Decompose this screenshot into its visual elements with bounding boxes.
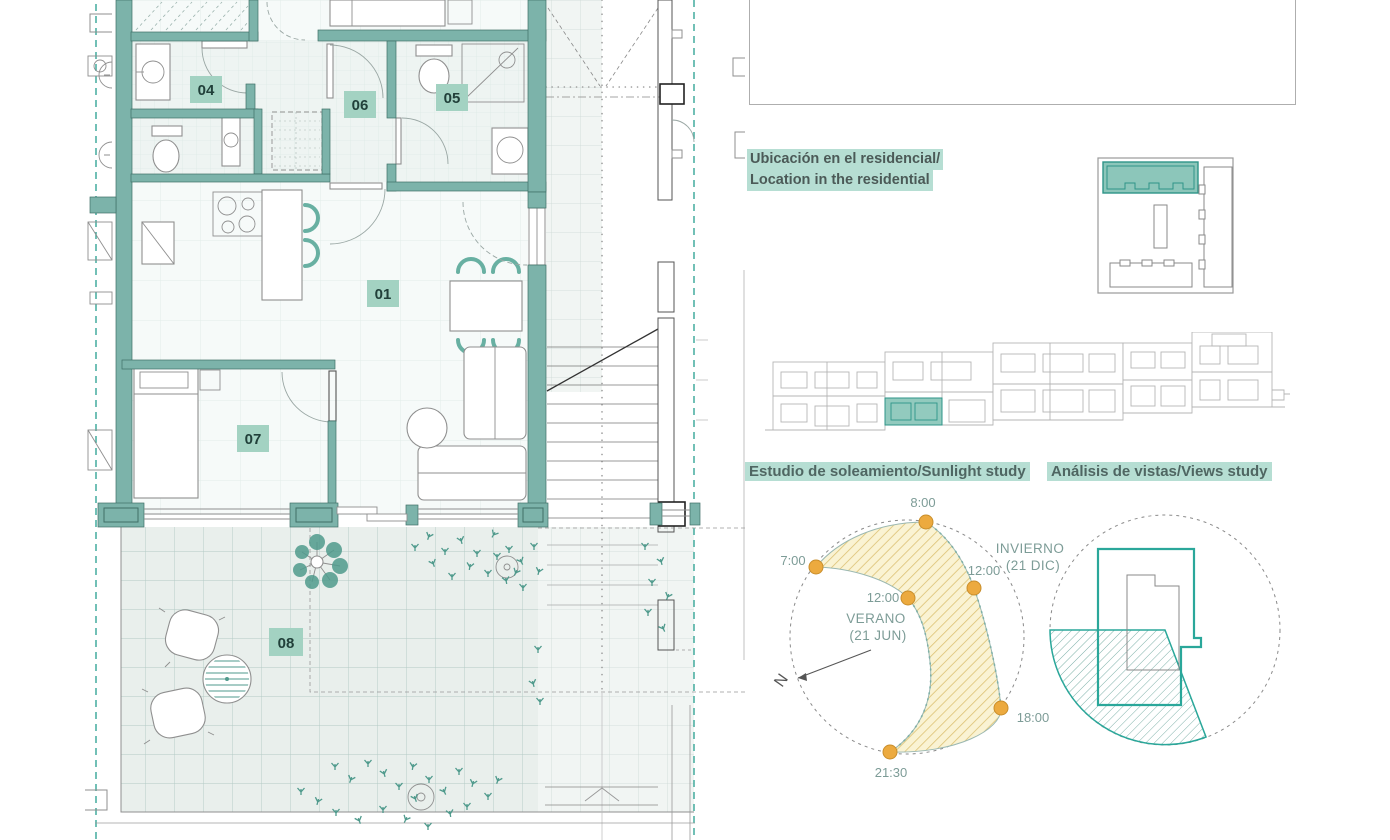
room-label-05-text: 05 [444,90,461,107]
location-heading: Ubicación en el residencial/ Location in… [747,149,943,191]
room-label-05: 05 [436,84,468,111]
time-label-800: 8:00 [910,495,935,510]
room-label-07: 07 [237,425,269,452]
time-label-1200-winter: 12:00 [968,563,1001,578]
room-label-06-text: 06 [352,97,369,114]
room-label-08: 08 [269,628,303,656]
views-study-title-text: Análisis de vistas/Views study [1047,462,1272,481]
location-title-es: Ubicación en el residencial/ [747,149,943,170]
north-label: N [771,671,792,690]
highlighted-building [1103,162,1198,193]
title-block-box [749,0,1296,105]
room-label-04-text: 04 [198,82,215,99]
room-label-07-text: 07 [245,431,262,448]
sun-dot-1200-summer [901,591,915,605]
room-label-04: 04 [190,76,222,103]
sun-dot-2130 [883,745,897,759]
sunlight-study-title-text: Estudio de soleamiento/Sunlight study [745,462,1030,481]
room-label-06: 06 [344,91,376,118]
sun-dot-1200-winter [967,581,981,595]
sun-path-diagram: N 8:00 7:00 12:00 12:00 18:00 21:30 INVI… [760,490,1070,800]
summer-label: VERANO [846,611,905,626]
time-label-2130: 21:30 [875,765,908,780]
floor-plan-drawing: 04 06 05 01 07 08 [0,0,745,840]
views-study-title: Análisis de vistas/Views study [1047,462,1272,481]
summer-date: (21 JUN) [849,628,906,643]
sun-dot-800 [919,515,933,529]
sunlight-study-title: Estudio de soleamiento/Sunlight study [745,462,1030,481]
sun-path-band [816,522,1001,752]
plan-sheet: 04 06 05 01 07 08 [0,0,1390,840]
room-label-01: 01 [367,280,399,307]
location-title-en: Location in the residential [747,170,933,191]
elevation-highlighted-unit [885,398,942,425]
street-elevation [765,332,1290,452]
elevation-buildings [765,332,1290,430]
time-label-700: 7:00 [780,553,805,568]
room-label-01-text: 01 [375,286,392,303]
sun-dot-700 [809,560,823,574]
site-key-plan [1093,152,1243,297]
neighbor-left-fixtures [85,14,112,810]
sun-dot-1800 [994,701,1008,715]
time-label-1200-summer: 12:00 [867,590,900,605]
room-label-08-text: 08 [278,635,295,652]
views-diagram [1040,492,1320,792]
north-arrow: N [771,650,871,690]
